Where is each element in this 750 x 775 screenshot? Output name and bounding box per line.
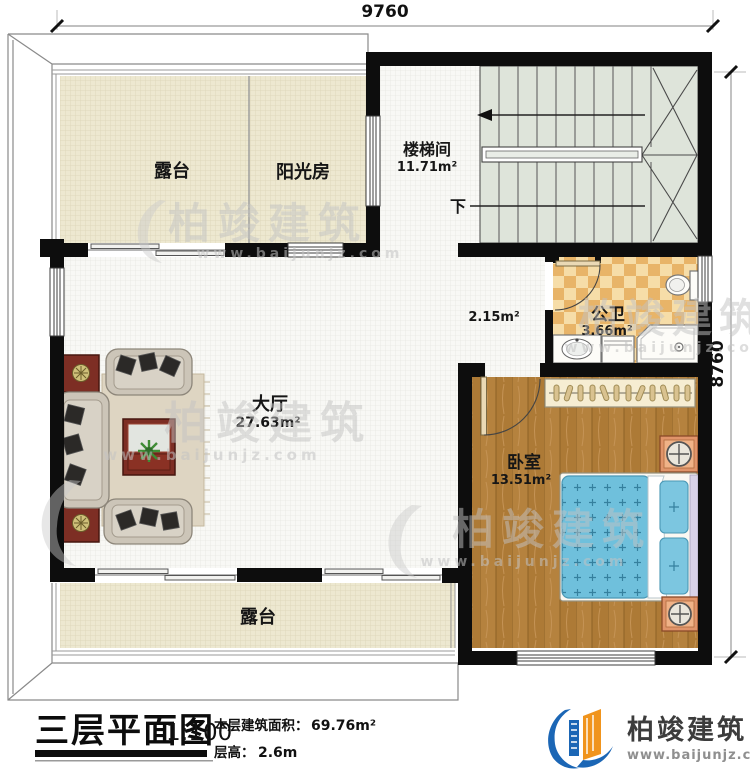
watermark-url: www.baijunjz.com	[565, 340, 750, 356]
floor-height-label: 层高：	[214, 744, 255, 761]
end-table-top	[63, 355, 99, 392]
window-living-left	[50, 268, 64, 336]
floor-area-value: 69.76m²	[311, 718, 376, 734]
dimension-right: 8760	[708, 66, 746, 663]
window-bedroom-bottom	[517, 651, 655, 665]
watermark-text: 柏竣建筑	[168, 199, 368, 248]
area-stairwell: 11.71m²	[397, 160, 457, 175]
watermark-url: www.baijunjz.com	[103, 446, 320, 464]
sofa-bottom	[104, 499, 192, 544]
company-logo: 柏竣建筑 www.baijunjz.com	[548, 709, 750, 769]
headboard	[690, 475, 698, 599]
label-stairwell: 楼梯间	[403, 140, 451, 159]
label-terrace-top: 露台	[154, 160, 190, 182]
nightstand-bottom	[662, 597, 698, 631]
area-bedroom: 13.51m²	[491, 473, 551, 488]
wardrobe	[545, 379, 695, 407]
area-corridor: 2.15m²	[468, 310, 519, 325]
watermark-url: www.baijunjz.com	[421, 554, 628, 570]
staircase	[470, 66, 698, 243]
dimension-top: 9760	[51, 2, 719, 32]
sliding-door-terrace-bottom-left	[95, 569, 237, 580]
title-block: 三层平面图 1:100 本层建筑面积： 69.76m² 层高： 2.6m	[35, 711, 376, 762]
label-bedroom: 卧室	[507, 452, 541, 473]
watermark-text: 柏竣建筑	[578, 296, 750, 342]
watermark-text: 柏竣建筑	[164, 398, 372, 449]
title-underline	[35, 750, 207, 757]
end-table-bottom	[63, 505, 99, 542]
sofa-top	[106, 349, 192, 395]
company-logo-icon	[548, 709, 613, 769]
company-url: www.baijunjz.com	[627, 748, 750, 763]
label-sunroom: 阳光房	[276, 161, 330, 183]
sliding-door-terrace-bottom-right	[322, 569, 442, 580]
label-stair-down: 下	[450, 197, 466, 216]
watermark-3: 柏竣建筑 www.baijunjz.com	[565, 296, 750, 356]
company-name: 柏竣建筑	[627, 714, 747, 746]
floorplan-drawing: 9760 8760 露台 阳光房 楼梯间 11.71m² 下 2.15m² 公卫…	[0, 0, 750, 775]
floor-area-label: 本层建筑面积：	[214, 717, 309, 734]
floorplan-page: 9760 8760 露台 阳光房 楼梯间 11.71m² 下 2.15m² 公卫…	[0, 0, 750, 775]
label-terrace-bottom: 露台	[240, 606, 276, 628]
nightstand-top	[660, 436, 698, 472]
watermark-url: www.baijunjz.com	[197, 246, 404, 262]
dimension-top-value: 9760	[361, 2, 408, 22]
window-sunroom-stair	[366, 116, 380, 206]
floor-height-value: 2.6m	[258, 745, 297, 761]
watermark-text: 柏竣建筑	[452, 505, 652, 554]
